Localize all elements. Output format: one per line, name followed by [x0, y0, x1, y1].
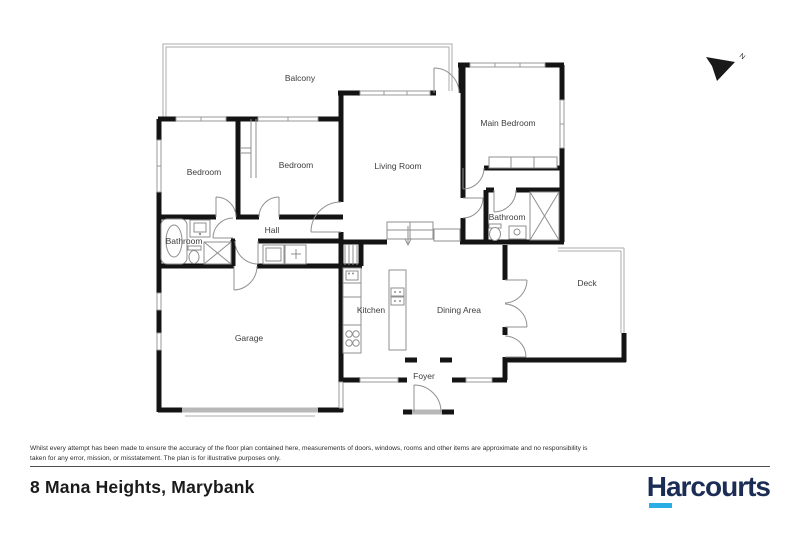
shower-icon [530, 192, 559, 240]
laundry-appliances-icon [263, 245, 306, 264]
room-label-balcony: Balcony [285, 73, 316, 83]
room-label-dining-area: Dining Area [437, 305, 481, 315]
room-label-bedroom-left: Bedroom [187, 167, 222, 177]
kitchen-island-icon [389, 270, 406, 350]
property-address: 8 Mana Heights, Marybank [30, 477, 255, 498]
steps-icon [387, 222, 460, 245]
wardrobe-icon [240, 119, 256, 178]
room-label-bedroom-middle: Bedroom [279, 160, 314, 170]
logo-underline [649, 503, 672, 508]
toilet-icon [188, 246, 201, 264]
vanity-sink-icon [190, 220, 210, 237]
room-label-main-bedroom: Main Bedroom [480, 118, 535, 128]
room-label-bathroom-right: Bathroom [489, 212, 526, 222]
room-label-foyer: Foyer [413, 371, 435, 381]
north-label: N [738, 53, 746, 62]
linen-closet-icon [345, 244, 357, 265]
room-label-deck: Deck [577, 278, 597, 288]
fixtures [161, 119, 559, 353]
toilet-icon [489, 224, 501, 241]
floor-plan-page: { "colors": { "wall": "#141414", "window… [0, 0, 800, 534]
footer-divider [30, 466, 770, 467]
room-label-hall: Hall [265, 225, 280, 235]
deck-outline [558, 248, 624, 333]
north-arrow-icon: N [706, 53, 746, 81]
room-label-kitchen: Kitchen [357, 305, 386, 315]
room-label-living-room: Living Room [374, 161, 421, 171]
basin-icon [509, 226, 526, 239]
shower-icon [204, 242, 231, 264]
disclaimer-text: Whilst every attempt has been made to en… [30, 444, 602, 463]
built-in-robe-icon [489, 157, 557, 168]
harcourts-logo: Harcourts [647, 471, 770, 511]
harcourts-wordmark: Harcourts [647, 471, 770, 502]
room-label-bathroom-left: Bathroom [166, 236, 203, 246]
room-label-garage: Garage [235, 333, 264, 343]
